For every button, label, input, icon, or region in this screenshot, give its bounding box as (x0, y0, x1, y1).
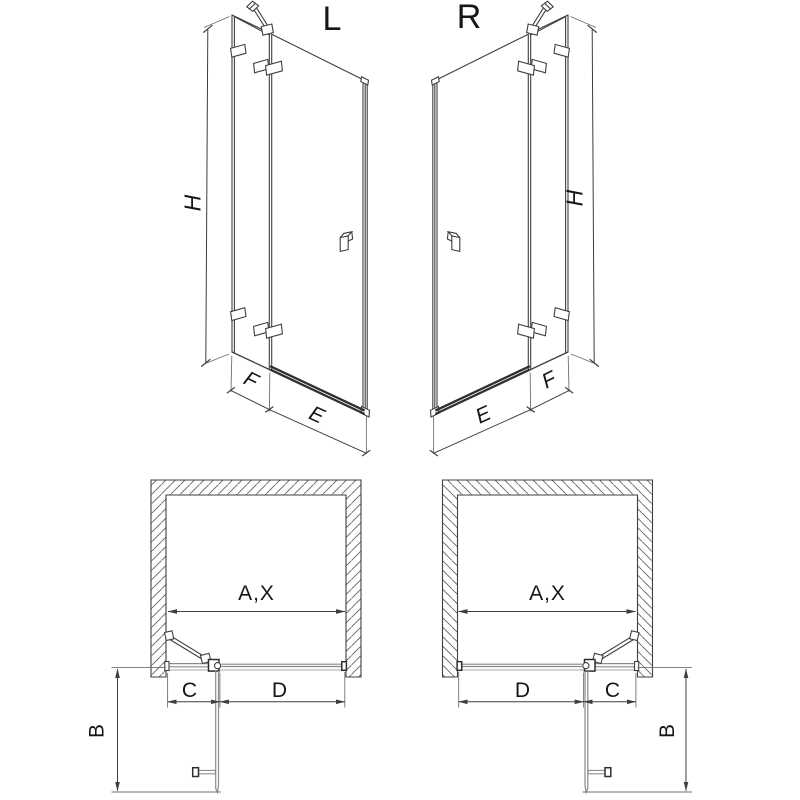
opening-width-label-left: A,X (238, 582, 275, 605)
technical-diagram: L R H H F E F E A,X A,X C D D C B B (0, 0, 800, 800)
opening-width-label-right: A,X (529, 582, 566, 605)
fixed-segment-label-left: C (182, 679, 198, 702)
fixed-width-label-left: F (240, 367, 263, 394)
fixed-segment-label-right: C (605, 679, 621, 702)
door-width-label-left: E (306, 402, 329, 429)
door-segment-label-left: D (272, 679, 288, 702)
door-segment-label-right: D (515, 679, 531, 702)
swing-depth-label-left: B (86, 723, 109, 738)
door-width-label-right: E (472, 401, 495, 428)
plan-view-right (443, 480, 693, 792)
variant-left-label: L (323, 0, 342, 38)
front-view-right (430, 1, 599, 456)
fixed-width-label-right: F (538, 367, 561, 394)
front-view-left (201, 1, 370, 456)
plan-view-left (112, 480, 362, 792)
height-dim-label-right: H (562, 189, 588, 206)
swing-depth-label-right: B (656, 723, 679, 738)
height-dim-label-left: H (180, 194, 206, 211)
variant-right-label: R (457, 0, 482, 36)
